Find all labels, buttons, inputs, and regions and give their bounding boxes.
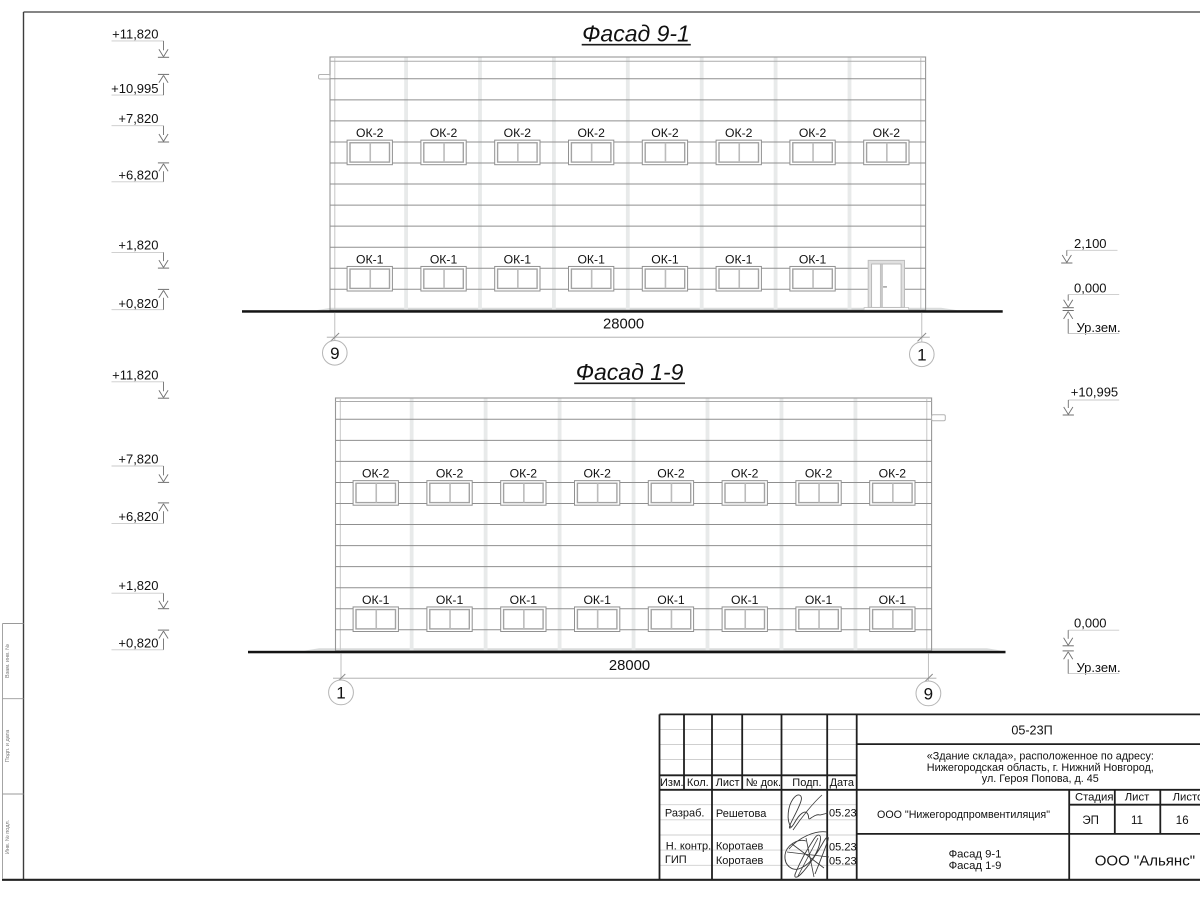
svg-text:+6,820: +6,820: [118, 167, 158, 182]
svg-text:ОК-1: ОК-1: [657, 593, 685, 607]
svg-text:ОК-2: ОК-2: [356, 126, 384, 140]
svg-text:Лист: Лист: [716, 777, 740, 789]
svg-text:9: 9: [924, 685, 933, 704]
svg-text:ОК-2: ОК-2: [731, 466, 759, 480]
svg-text:Лист: Лист: [1125, 792, 1150, 804]
svg-text:Инв. № подл.: Инв. № подл.: [5, 819, 11, 854]
svg-text:ЭП: ЭП: [1082, 815, 1099, 827]
svg-text:ОК-1: ОК-1: [510, 593, 538, 607]
svg-text:Коротаев: Коротаев: [716, 855, 764, 867]
svg-text:+0,820: +0,820: [118, 296, 158, 311]
svg-text:Нижегородская область, г. Нижн: Нижегородская область, г. Нижний Новгоро…: [927, 762, 1154, 774]
svg-text:ОК-2: ОК-2: [583, 466, 611, 480]
svg-text:9: 9: [330, 344, 339, 363]
svg-text:Взам. инв. №: Взам. инв. №: [5, 644, 11, 678]
svg-text:Подп. и дата: Подп. и дата: [5, 729, 11, 762]
svg-text:11: 11: [1131, 815, 1143, 827]
svg-text:ОК-1: ОК-1: [436, 593, 464, 607]
svg-text:Изм.: Изм.: [660, 777, 684, 789]
svg-text:Решетова: Решетова: [716, 808, 767, 820]
svg-text:Н. контр.: Н. контр.: [666, 841, 711, 853]
svg-text:Разраб.: Разраб.: [665, 808, 705, 820]
svg-text:Дата: Дата: [830, 777, 855, 789]
svg-text:ОК-1: ОК-1: [577, 252, 605, 266]
svg-text:ОК-2: ОК-2: [510, 466, 538, 480]
svg-text:ОК-2: ОК-2: [657, 466, 685, 480]
svg-text:Листов: Листов: [1173, 792, 1200, 804]
svg-text:2,100: 2,100: [1074, 236, 1107, 251]
svg-text:28000: 28000: [609, 658, 650, 674]
svg-text:Фасад 1-9: Фасад 1-9: [576, 359, 684, 385]
svg-text:Фасад 1-9: Фасад 1-9: [949, 860, 1002, 872]
svg-text:ОК-2: ОК-2: [430, 126, 458, 140]
svg-text:1: 1: [336, 684, 345, 703]
svg-text:16: 16: [1176, 815, 1189, 827]
svg-text:0,000: 0,000: [1074, 280, 1107, 295]
svg-text:Стадия: Стадия: [1075, 792, 1114, 804]
svg-text:+1,820: +1,820: [118, 578, 158, 593]
svg-text:05.23: 05.23: [829, 841, 857, 853]
svg-text:ООО "Нижегородпромвентиляция": ООО "Нижегородпромвентиляция": [877, 809, 1050, 821]
svg-text:ООО "Альянс": ООО "Альянс": [1095, 852, 1195, 869]
svg-text:ОК-2: ОК-2: [805, 466, 833, 480]
svg-text:+6,820: +6,820: [118, 509, 158, 524]
svg-text:+11,820: +11,820: [112, 367, 158, 382]
svg-text:Ур.зем.: Ур.зем.: [1077, 320, 1121, 335]
svg-text:ОК-1: ОК-1: [430, 252, 458, 266]
svg-text:ОК-1: ОК-1: [725, 252, 753, 266]
svg-text:Ур.зем.: Ур.зем.: [1077, 660, 1121, 675]
svg-text:0,000: 0,000: [1074, 616, 1107, 631]
svg-text:ОК-1: ОК-1: [879, 593, 907, 607]
svg-text:28000: 28000: [603, 317, 644, 333]
svg-text:ГИП: ГИП: [665, 854, 687, 866]
svg-text:Подп.: Подп.: [792, 777, 821, 789]
svg-text:ОК-2: ОК-2: [436, 466, 464, 480]
svg-text:ОК-2: ОК-2: [504, 126, 532, 140]
svg-text:ОК-1: ОК-1: [805, 593, 833, 607]
svg-text:05-23П: 05-23П: [1011, 723, 1052, 737]
svg-text:ОК-2: ОК-2: [873, 126, 901, 140]
svg-text:ОК-1: ОК-1: [504, 252, 532, 266]
svg-text:ОК-1: ОК-1: [651, 252, 679, 266]
svg-text:+10,995: +10,995: [111, 81, 158, 96]
svg-text:ОК-1: ОК-1: [799, 252, 827, 266]
svg-text:ОК-2: ОК-2: [577, 126, 605, 140]
svg-text:ОК-1: ОК-1: [356, 252, 384, 266]
svg-text:ОК-1: ОК-1: [731, 593, 759, 607]
svg-text:+10,995: +10,995: [1071, 385, 1118, 400]
svg-text:ОК-2: ОК-2: [362, 466, 390, 480]
svg-text:+11,820: +11,820: [112, 27, 158, 42]
svg-text:+0,820: +0,820: [118, 636, 158, 651]
svg-text:ОК-2: ОК-2: [651, 126, 679, 140]
svg-text:ОК-2: ОК-2: [879, 466, 907, 480]
svg-text:+1,820: +1,820: [118, 237, 158, 252]
svg-text:ОК-1: ОК-1: [362, 593, 390, 607]
svg-text:05.23: 05.23: [829, 855, 857, 867]
svg-text:Фасад 9-1: Фасад 9-1: [949, 848, 1002, 860]
svg-text:ОК-2: ОК-2: [799, 126, 827, 140]
svg-text:+7,820: +7,820: [118, 452, 158, 467]
svg-text:05.23: 05.23: [829, 808, 857, 820]
svg-text:Фасад 9-1: Фасад 9-1: [582, 21, 690, 47]
svg-text:№ док.: № док.: [746, 777, 781, 789]
svg-text:«Здание склада», расположенное: «Здание склада», расположенное по адресу…: [927, 751, 1154, 763]
svg-text:1: 1: [917, 346, 926, 365]
svg-text:+7,820: +7,820: [118, 111, 158, 126]
svg-text:Коротаев: Коротаев: [716, 841, 764, 853]
svg-text:ул. Героя Попова, д. 45: ул. Героя Попова, д. 45: [982, 773, 1099, 785]
svg-text:ОК-2: ОК-2: [725, 126, 753, 140]
svg-text:Кол.: Кол.: [687, 777, 709, 789]
svg-text:ОК-1: ОК-1: [583, 593, 611, 607]
